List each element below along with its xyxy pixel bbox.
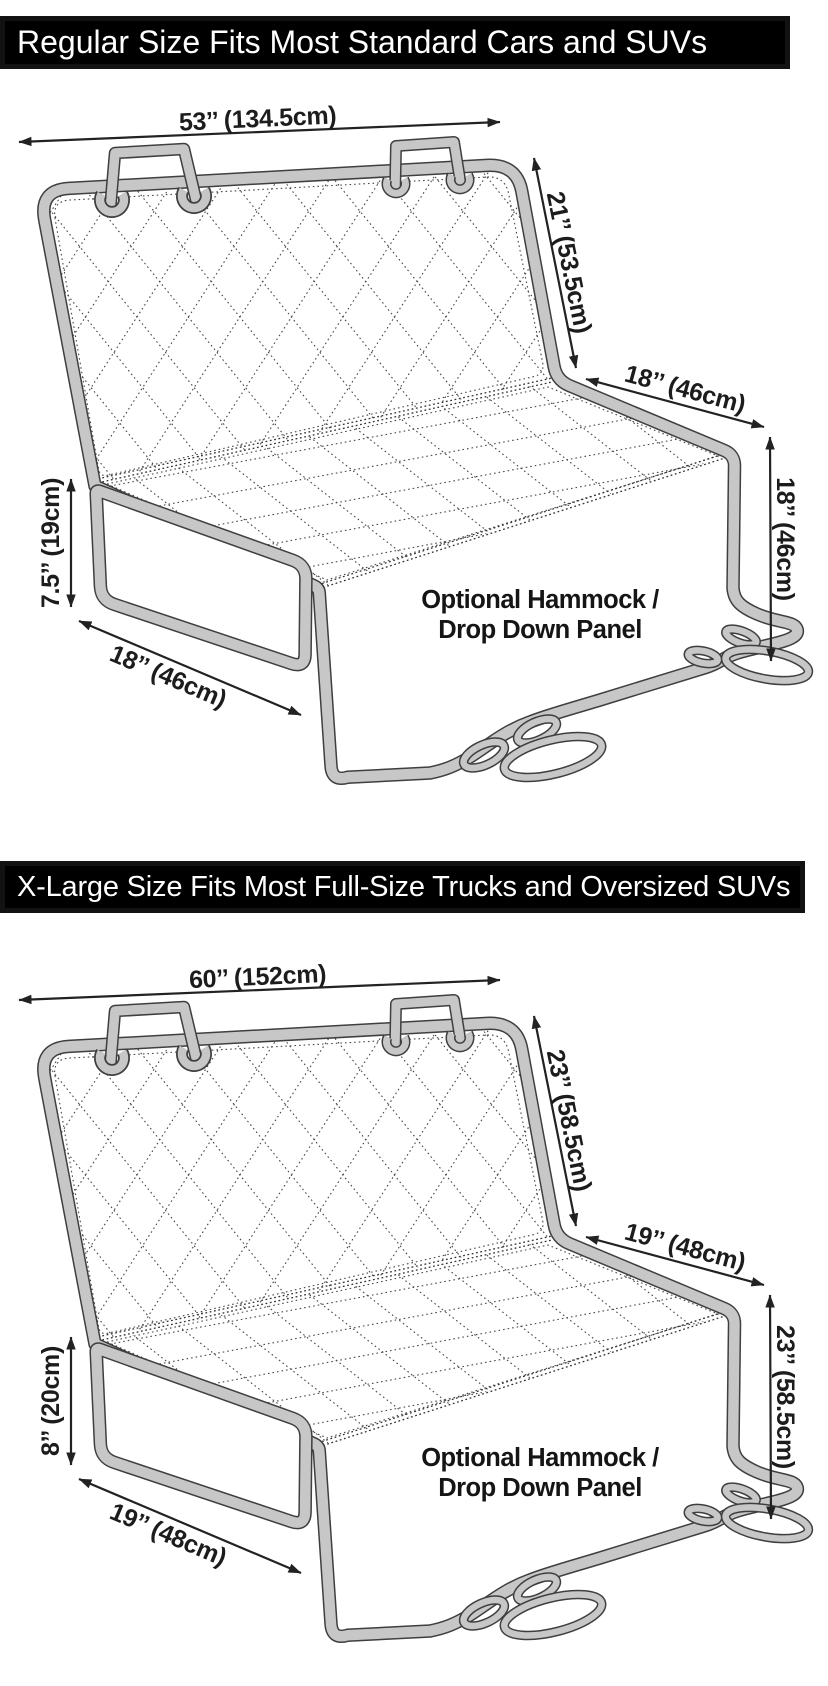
svg-text:Optional Hammock /: Optional Hammock / [421,1444,659,1472]
svg-text:53’’ (134.5cm): 53’’ (134.5cm) [178,101,337,136]
svg-text:18’’ (46cm): 18’’ (46cm) [771,477,799,601]
svg-text:Drop Down Panel: Drop Down Panel [438,616,642,644]
svg-text:7.5’’ (19cm): 7.5’’ (19cm) [37,478,65,608]
svg-text:8’’ (20cm): 8’’ (20cm) [37,1346,65,1456]
svg-text:Drop Down Panel: Drop Down Panel [438,1474,642,1502]
svg-text:23’’ (58.5cm): 23’’ (58.5cm) [771,1325,799,1469]
svg-text:Optional Hammock /: Optional Hammock / [421,586,659,614]
